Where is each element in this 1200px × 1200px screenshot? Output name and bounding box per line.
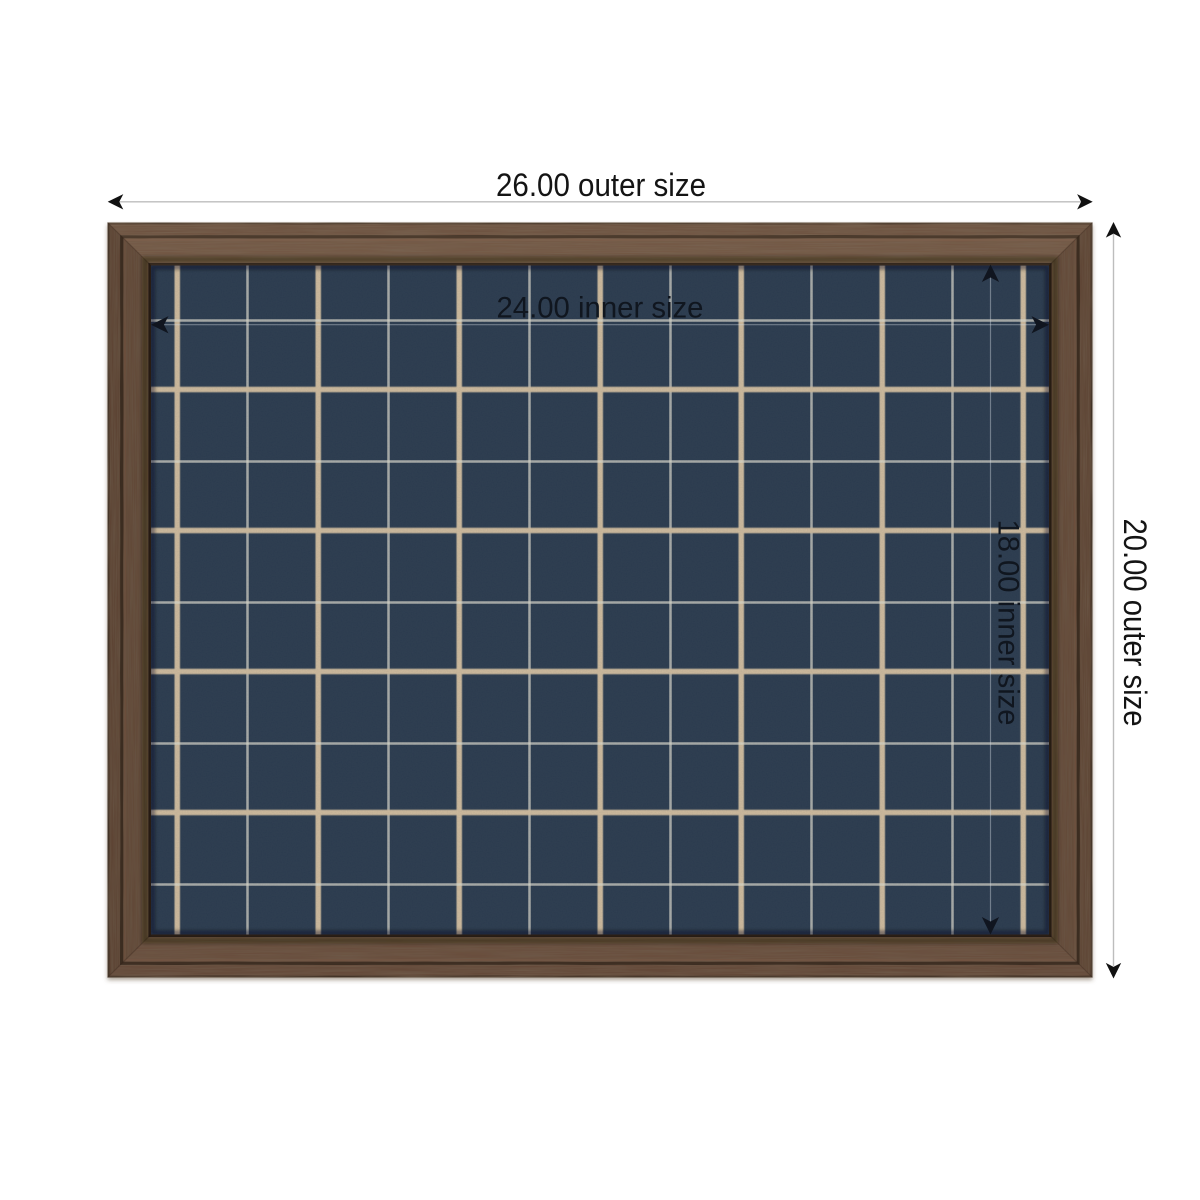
svg-text:26.00 outer size: 26.00 outer size (496, 167, 706, 203)
svg-text:20.00 outer size: 20.00 outer size (1117, 519, 1153, 727)
svg-text:18.00 inner size: 18.00 inner size (992, 520, 1025, 726)
svg-text:24.00 inner size: 24.00 inner size (497, 292, 704, 325)
